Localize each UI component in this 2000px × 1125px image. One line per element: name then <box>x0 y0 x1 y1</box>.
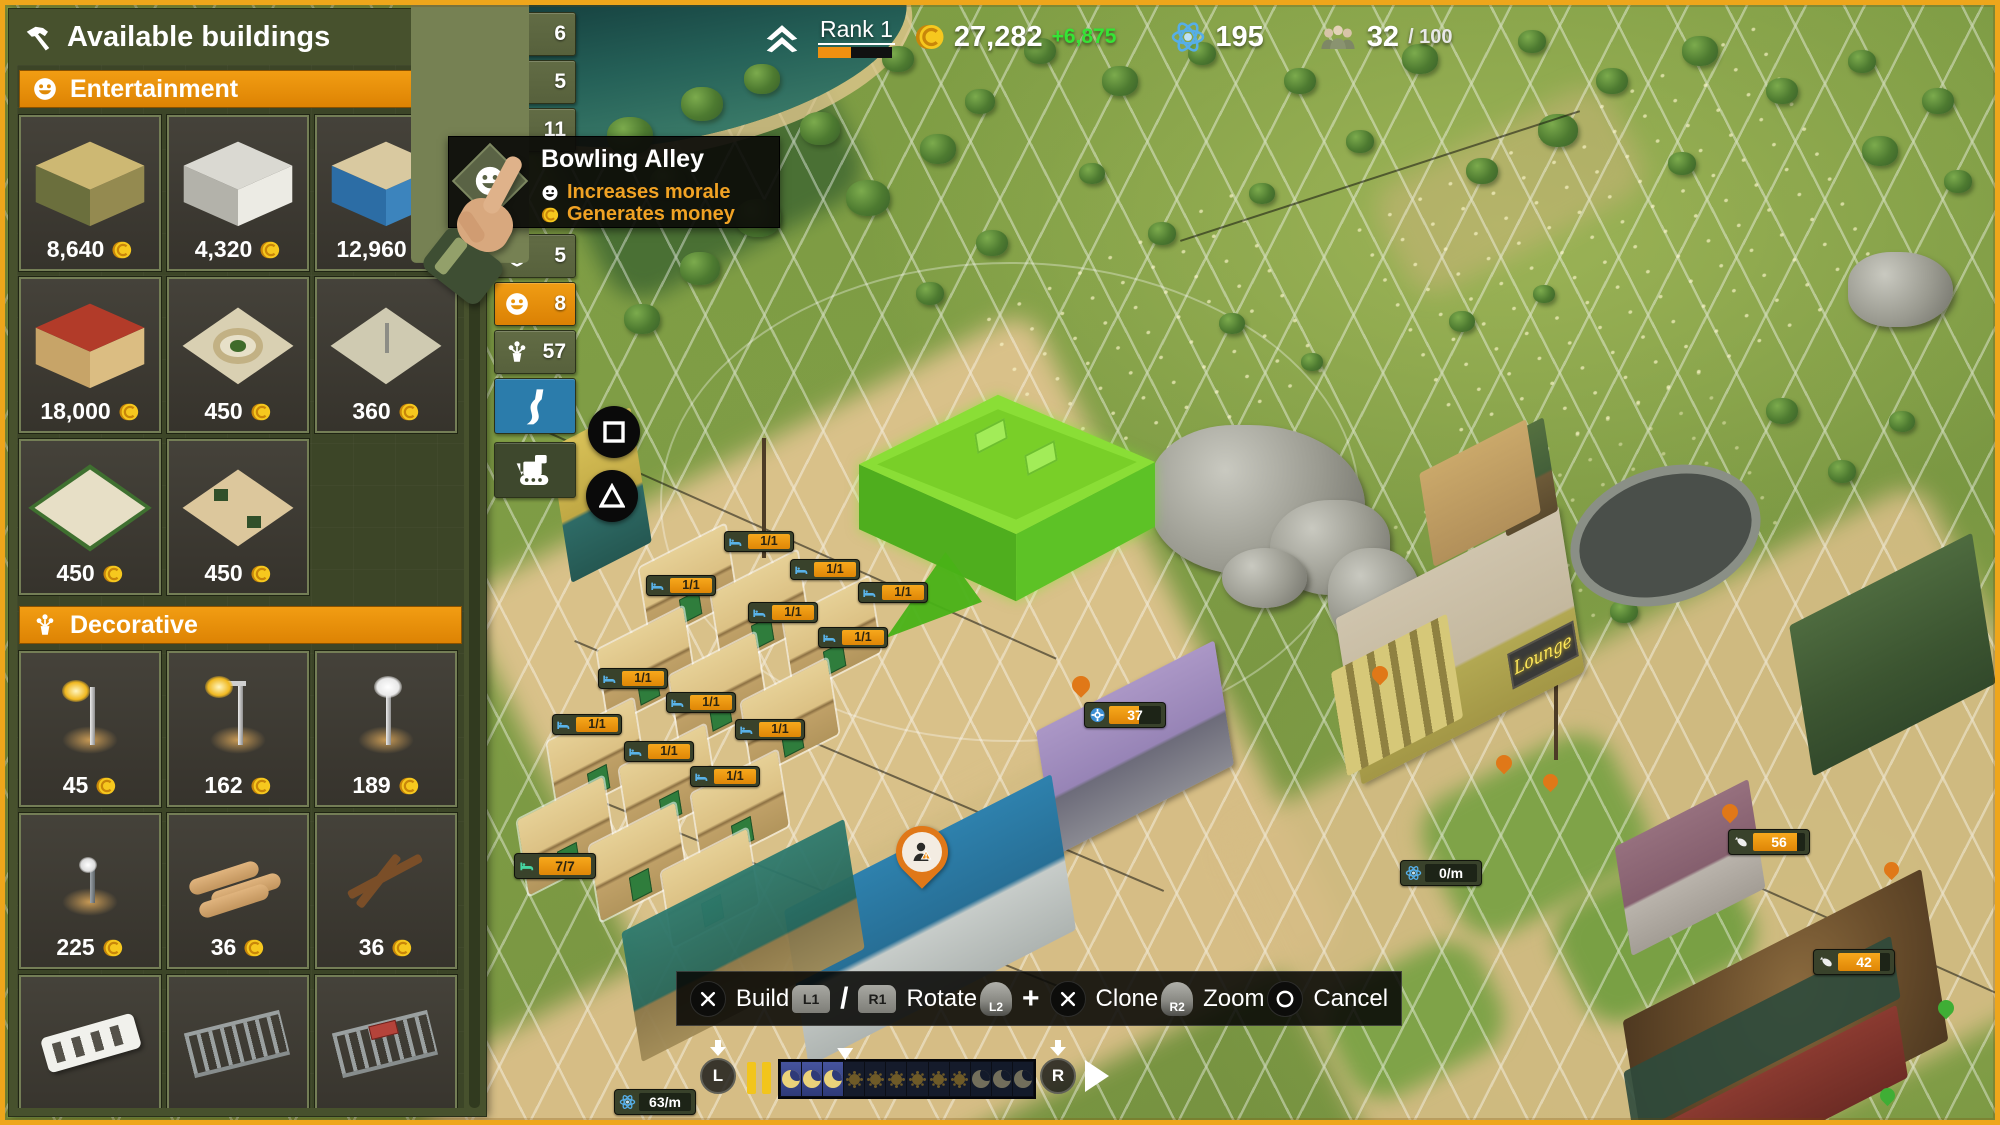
tooltip-effect-morale: Increases morale <box>541 181 730 204</box>
coin-icon <box>102 937 124 959</box>
badge-value: 42 <box>1856 955 1872 969</box>
control-hint-cancel[interactable]: Cancel <box>1267 981 1388 1017</box>
bed-blue-icon <box>556 717 572 733</box>
day-night-timeline[interactable] <box>778 1059 1036 1099</box>
globe-lamp-thumbnail <box>327 672 445 768</box>
timeline-slot-5-day[interactable] <box>865 1062 885 1096</box>
sidebar-tab-count: 57 <box>543 340 566 364</box>
cross-icon <box>1058 989 1078 1009</box>
coin-icon <box>250 563 272 585</box>
science-counter[interactable]: 195 <box>1170 19 1263 55</box>
badge-icon-bed-blue <box>752 606 769 619</box>
tree <box>1346 130 1374 153</box>
hud-topbar: Rank 1 27,282 +6,875 195 <box>760 8 1453 66</box>
atom-icon <box>1170 19 1206 55</box>
price-tag: 360 <box>352 396 419 431</box>
plant-icon <box>504 339 530 365</box>
control-hint-clone[interactable]: L2+Clone <box>980 981 1158 1017</box>
price-value: 162 <box>204 774 242 797</box>
plant-icon <box>32 612 58 638</box>
badge-value: 1/1 <box>854 631 871 644</box>
price-tag: 450 <box>56 558 123 593</box>
tree <box>916 282 944 305</box>
bed-blue-icon <box>862 585 878 601</box>
badge-value: 7/7 <box>555 859 574 873</box>
money-counter[interactable]: 27,282 +6,875 <box>915 21 1117 54</box>
badge-value: 1/1 <box>784 606 801 619</box>
price-tag: 162 <box>204 770 271 805</box>
tree <box>1862 136 1898 166</box>
tree <box>744 64 780 94</box>
timeline-slot-6-day[interactable] <box>886 1062 906 1096</box>
price-value: 12,960 <box>336 238 406 261</box>
r2-button-icon: R2 <box>1161 982 1193 1016</box>
street-light-thumbnail <box>179 672 297 768</box>
rank-progress-bar <box>818 47 892 58</box>
hammer-icon <box>23 23 53 53</box>
panel-body: Entertainment8,6404,32012,96018,00045036… <box>17 65 464 1108</box>
price-tag: 18,000 <box>40 396 139 431</box>
sidebar-tab-plant[interactable]: 57 <box>494 330 576 374</box>
tree <box>1284 68 1316 94</box>
pause-indicator[interactable] <box>747 1062 773 1094</box>
population-icon <box>1318 22 1358 52</box>
coin-icon <box>95 775 117 797</box>
bomb-icon <box>1818 952 1835 972</box>
l1-label: L1 <box>803 991 819 1007</box>
coin-icon <box>541 206 559 224</box>
coin-icon <box>111 239 133 261</box>
world-badge-1-1: 1/1 <box>818 627 888 648</box>
bed-blue-icon <box>739 722 755 738</box>
r1-button-icon: R1 <box>858 985 896 1013</box>
world-badge-1-1: 1/1 <box>598 668 668 689</box>
science-value: 195 <box>1215 21 1263 54</box>
metal-gate-thumbnail <box>327 996 445 1092</box>
atom-icon <box>619 1092 636 1112</box>
category-label: Entertainment <box>70 75 238 104</box>
badge-icon-atom <box>1405 867 1422 880</box>
tree <box>1148 222 1176 245</box>
world-badge-1-1: 1/1 <box>858 582 928 603</box>
coin-icon <box>250 401 272 423</box>
badge-value: 1/1 <box>660 745 677 758</box>
badge-value: 63/m <box>649 1095 681 1109</box>
tree <box>1102 66 1138 96</box>
world-badge-1-1: 1/1 <box>748 602 818 623</box>
coin-icon <box>250 775 272 797</box>
world-badge-7-7: 7/7 <box>514 853 596 879</box>
coin-icon <box>102 563 124 585</box>
tree <box>1682 36 1718 66</box>
bed-blue-icon <box>628 744 644 760</box>
rank-indicator[interactable]: Rank 1 <box>818 16 895 58</box>
tree <box>1944 170 1972 193</box>
sidebar-tab-road[interactable] <box>494 378 576 434</box>
circle-button-icon <box>1267 981 1303 1017</box>
world-badge-1-1: 1/1 <box>552 714 622 735</box>
building-card-concrete-barrier[interactable] <box>19 975 161 1108</box>
world-badge-56: 56 <box>1728 829 1810 855</box>
right-stick-label: R <box>1052 1066 1064 1086</box>
world-badge-63-m: 63/m <box>614 1089 696 1115</box>
price-tag: 4,320 <box>195 234 282 269</box>
tree <box>1668 152 1696 175</box>
timeline-slot-7-day[interactable] <box>907 1062 927 1096</box>
tree <box>1249 183 1275 204</box>
pub-thumbnail <box>31 136 149 232</box>
building-card-theater[interactable]: 4,320 <box>167 115 309 271</box>
l1-button-icon: L1 <box>792 985 830 1013</box>
tree <box>965 89 995 114</box>
badge-value: 1/1 <box>771 723 788 736</box>
bulldozer-icon <box>515 450 555 490</box>
smiley-icon <box>32 76 58 102</box>
timeline-slot-2-night[interactable] <box>802 1062 822 1096</box>
small-plaza-thumbnail <box>327 298 445 394</box>
badge-icon-bed-blue <box>556 718 573 731</box>
badge-icon-atom <box>619 1096 636 1109</box>
tooltip-effect-money: Generates money <box>541 203 735 226</box>
r1-label: R1 <box>868 991 886 1007</box>
tree <box>976 230 1008 256</box>
building-card-metal-gate[interactable] <box>315 975 457 1108</box>
tree <box>920 134 956 164</box>
atom-icon <box>1405 863 1422 883</box>
available-buildings-panel: Available buildings Entertainment8,6404,… <box>8 8 487 1117</box>
building-card-street-light[interactable]: 162 <box>167 651 309 807</box>
price-value: 189 <box>352 774 390 797</box>
bed-blue-icon <box>602 671 618 687</box>
card-grid-entertainment: 8,6404,32012,96018,000450360450450 <box>17 113 464 601</box>
coin-icon <box>243 937 265 959</box>
timeline-slot-12-night[interactable] <box>1013 1062 1033 1096</box>
badge-value: 1/1 <box>588 718 605 731</box>
bollard-light-thumbnail <box>31 834 149 930</box>
control-hint-build[interactable]: Build <box>690 981 789 1017</box>
building-card-broken-windmill[interactable]: 36 <box>315 813 457 969</box>
price-value: 18,000 <box>40 400 110 423</box>
bed-blue-icon <box>822 630 838 646</box>
badge-value: 1/1 <box>894 586 911 599</box>
l2-button-icon: L2 <box>980 982 1012 1016</box>
game-screen: Lounge 1/11/11/11/11/11/11/11/11/11/11/1… <box>0 0 2000 1125</box>
badge-icon-bed-blue <box>822 631 839 644</box>
down-arrow-icon <box>708 1040 728 1056</box>
gear-icon <box>1089 705 1106 725</box>
boulder <box>1222 548 1307 608</box>
coin-icon <box>398 775 420 797</box>
world-badge-42: 42 <box>1813 949 1895 975</box>
price-tag: 189 <box>352 770 419 805</box>
square-icon <box>602 420 626 444</box>
price-tag: 225 <box>56 932 123 967</box>
building-card-restaurant[interactable]: 18,000 <box>19 277 161 433</box>
price-value: 45 <box>63 774 89 797</box>
tree <box>1922 88 1954 114</box>
price-tag: 450 <box>204 558 271 593</box>
badge-value: 37 <box>1127 708 1143 722</box>
road-icon <box>515 386 555 426</box>
smiley-icon <box>541 184 559 202</box>
bomb-icon <box>1733 832 1750 852</box>
coin-icon <box>398 401 420 423</box>
world-badge-1-1: 1/1 <box>735 719 805 740</box>
badge-value: 1/1 <box>726 770 743 783</box>
population-cap: / 100 <box>1408 26 1452 49</box>
price-tag: 36 <box>211 932 266 967</box>
timeline-slot-4-day[interactable] <box>844 1062 864 1096</box>
building-card-log-pile[interactable]: 36 <box>167 813 309 969</box>
tree <box>846 180 890 216</box>
timeline-slot-8-day[interactable] <box>929 1062 949 1096</box>
building-card-fountain-plaza[interactable]: 450 <box>167 277 309 433</box>
plus-separator: + <box>1022 982 1040 1016</box>
badge-icon-gear <box>1089 709 1106 722</box>
tree <box>1449 311 1475 332</box>
tree <box>1301 353 1323 371</box>
category-header-decorative[interactable]: Decorative <box>19 606 462 644</box>
badge-icon-bed-blue <box>794 563 811 576</box>
card-grid-decorative: 451621892253636 <box>17 649 464 1108</box>
theater-thumbnail <box>179 136 297 232</box>
bed-blue-icon <box>694 769 710 785</box>
tree <box>1219 313 1245 334</box>
left-stick-label: L <box>713 1066 723 1086</box>
log-pile-thumbnail <box>179 834 297 930</box>
triangle-button-prompt[interactable] <box>586 470 638 522</box>
world-badge-1-1: 1/1 <box>666 692 736 713</box>
price-value: 450 <box>56 562 94 585</box>
badge-icon-bed-blue <box>650 579 667 592</box>
rank-progress-fill <box>818 47 851 58</box>
hand-cursor <box>418 148 538 298</box>
controller-hint-bar: BuildL1/R1RotateL2+CloneR2ZoomCancel <box>676 971 1402 1026</box>
bed-blue-icon <box>752 605 768 621</box>
rank-label: Rank 1 <box>818 16 895 45</box>
coin-icon <box>259 239 281 261</box>
building-card-pub[interactable]: 8,640 <box>19 115 161 271</box>
tree <box>680 252 720 285</box>
badge-icon-bed-blue <box>628 745 645 758</box>
metal-fence-thumbnail <box>179 996 297 1092</box>
control-hint-label: Build <box>736 985 789 1013</box>
tree <box>1518 30 1546 53</box>
badge-icon-bed-blue <box>728 535 745 548</box>
cross-icon <box>698 989 718 1009</box>
badge-icon-bed-blue <box>739 723 756 736</box>
category-label: Decorative <box>70 611 198 640</box>
sidebar-tab-count: 8 <box>554 292 566 316</box>
badge-value: 1/1 <box>634 672 651 685</box>
tooltip-effect-text: Increases morale <box>567 181 730 204</box>
control-hint-label: Clone <box>1096 985 1159 1013</box>
concrete-barrier-thumbnail <box>31 996 149 1092</box>
cross-button-icon <box>1050 981 1086 1017</box>
left-stick-button[interactable]: L <box>700 1058 736 1094</box>
rank-chevron-icon <box>760 20 804 54</box>
badge-icon-bomb <box>1733 836 1750 849</box>
bed-blue-icon <box>650 578 666 594</box>
coin-icon <box>391 937 413 959</box>
price-value: 225 <box>56 936 94 959</box>
population-counter[interactable]: 32 / 100 <box>1318 21 1453 54</box>
badge-value: 1/1 <box>702 696 719 709</box>
control-hint-label: Rotate <box>906 985 977 1013</box>
price-value: 8,640 <box>47 238 105 261</box>
building-card-walled-garden[interactable]: 450 <box>19 439 161 595</box>
price-tag: 8,640 <box>47 234 134 269</box>
badge-value: 1/1 <box>682 579 699 592</box>
world-badge-1-1: 1/1 <box>790 559 860 580</box>
price-value: 36 <box>211 936 237 959</box>
money-delta: +6,875 <box>1052 25 1117 49</box>
person-warning-icon <box>909 839 935 865</box>
price-tag: 36 <box>359 932 414 967</box>
building-card-globe-lamp[interactable]: 189 <box>315 651 457 807</box>
tree <box>681 87 723 121</box>
timeline-slot-1-night[interactable] <box>781 1062 801 1096</box>
tooltip-title: Bowling Alley <box>541 145 704 174</box>
cross-button-icon <box>690 981 726 1017</box>
price-value: 36 <box>359 936 385 959</box>
building-card-rest-area[interactable]: 450 <box>167 439 309 595</box>
sidebar-tab-count: 6 <box>554 22 566 46</box>
bed-blue-icon <box>794 562 810 578</box>
tree <box>1766 398 1798 424</box>
bed-green-icon <box>519 856 536 876</box>
control-hint-label: Zoom <box>1203 985 1264 1013</box>
l2-label: L2 <box>989 1000 1003 1014</box>
badge-icon-bed-blue <box>862 586 879 599</box>
square-button-prompt[interactable] <box>588 406 640 458</box>
bed-blue-icon <box>670 695 686 711</box>
world-badge-1-1: 1/1 <box>690 766 760 787</box>
down-arrow-icon <box>1048 1040 1068 1056</box>
sidebar-tab-count: 5 <box>554 244 566 268</box>
tree <box>624 304 660 334</box>
tree <box>1889 411 1915 432</box>
colonist-alert-icon <box>902 832 942 872</box>
tree <box>800 112 840 145</box>
badge-value: 1/1 <box>826 563 843 576</box>
tree <box>1533 285 1555 303</box>
building-card-small-plaza[interactable]: 360 <box>315 277 457 433</box>
money-value: 27,282 <box>954 21 1043 54</box>
world-badge-1-1: 1/1 <box>724 531 794 552</box>
tree <box>1466 158 1498 184</box>
world-badge-1-1: 1/1 <box>646 575 716 596</box>
triangle-icon <box>599 483 625 509</box>
badge-icon-bomb <box>1818 956 1835 969</box>
timeline-slot-11-night[interactable] <box>992 1062 1012 1096</box>
price-value: 450 <box>204 400 242 423</box>
badge-icon-bed-blue <box>602 672 619 685</box>
building-card-metal-fence[interactable] <box>167 975 309 1108</box>
circle-icon <box>1275 989 1295 1009</box>
price-value: 450 <box>204 562 242 585</box>
price-value: 360 <box>352 400 390 423</box>
badge-value: 0/m <box>1439 866 1463 880</box>
tree <box>1079 163 1105 184</box>
badge-icon-bed-blue <box>694 770 711 783</box>
walled-garden-thumbnail <box>31 460 149 556</box>
world-badge-0-m: 0/m <box>1400 860 1482 886</box>
rest-area-thumbnail <box>179 460 297 556</box>
category-header-entertainment[interactable]: Entertainment <box>19 70 462 108</box>
panel-title-text: Available buildings <box>67 21 330 54</box>
building-card-street-lamp[interactable]: 45 <box>19 651 161 807</box>
timeline-slot-3-night[interactable] <box>823 1062 843 1096</box>
tree <box>1848 50 1876 73</box>
badge-value: 56 <box>1771 835 1787 849</box>
right-stick-button[interactable]: R <box>1040 1058 1076 1094</box>
bed-blue-icon <box>728 534 744 550</box>
tree <box>1596 68 1628 94</box>
tree <box>1828 460 1856 483</box>
badge-value: 1/1 <box>760 535 777 548</box>
timeline-slot-9-day[interactable] <box>950 1062 970 1096</box>
price-tag: 45 <box>63 770 118 805</box>
building-card-bollard-light[interactable]: 225 <box>19 813 161 969</box>
control-hint-rotate[interactable]: L1/R1Rotate <box>792 982 977 1016</box>
slash-separator: / <box>840 982 848 1016</box>
broken-windmill-thumbnail <box>327 834 445 930</box>
world-badge-1-1: 1/1 <box>624 741 694 762</box>
tree <box>1766 78 1798 104</box>
boulder <box>1848 252 1953 327</box>
fountain-plaza-thumbnail <box>179 298 297 394</box>
restaurant-thumbnail <box>31 298 149 394</box>
street-lamp-thumbnail <box>31 672 149 768</box>
control-hint-zoom[interactable]: R2Zoom <box>1161 982 1264 1016</box>
coin-icon <box>915 22 945 52</box>
badge-icon-bed-green <box>519 860 536 873</box>
sidebar-tab-bulldozer[interactable] <box>494 442 576 498</box>
timeline-slot-10-night[interactable] <box>971 1062 991 1096</box>
r2-label: R2 <box>1169 1000 1184 1014</box>
price-value: 4,320 <box>195 238 253 261</box>
population-value: 32 <box>1367 21 1399 54</box>
control-hint-label: Cancel <box>1313 985 1388 1013</box>
price-tag: 450 <box>204 396 271 431</box>
sidebar-tab-count: 5 <box>554 70 566 94</box>
world-badge-37: 37 <box>1084 702 1166 728</box>
tooltip-effect-text: Generates money <box>567 203 735 226</box>
coin-icon <box>118 401 140 423</box>
badge-icon-bed-blue <box>670 696 687 709</box>
